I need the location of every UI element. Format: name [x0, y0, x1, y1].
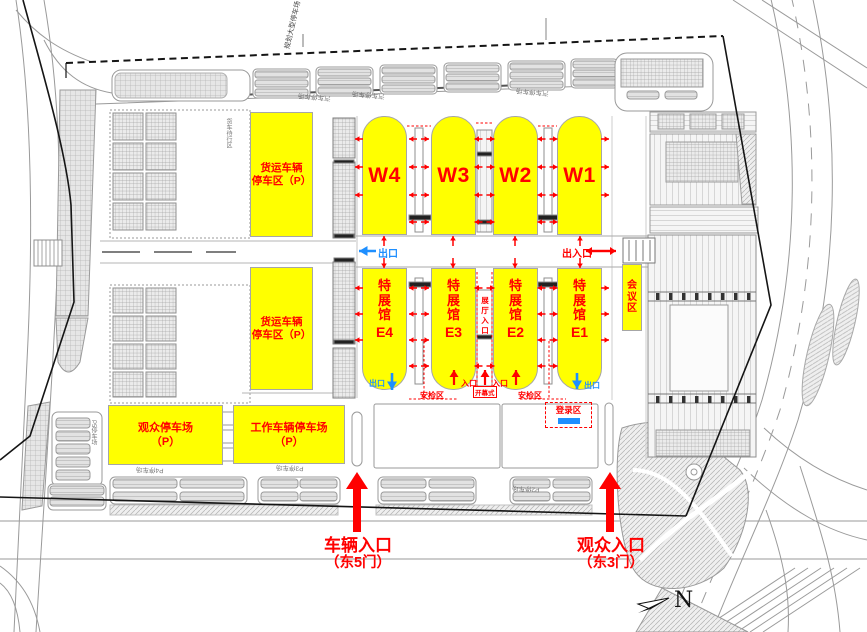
red-dashed-lines: [407, 123, 566, 399]
exhibition-site-map: 货运车辆 停车区（P） 货运车辆 停车区（P） 观众停车场 （P） 工作车辆停车…: [0, 0, 867, 632]
visitor-entrance-gate-label: 观众入口 （东3门）: [556, 536, 666, 572]
vehicle-entrance-arrow: [346, 472, 368, 532]
registration-label: 登录区: [546, 404, 591, 416]
opening-ceremony-label: 开幕式: [473, 386, 497, 398]
registration-desk-icon: [558, 418, 580, 424]
exit-label-e1: 出口: [584, 380, 600, 391]
security-check-label-right: 安检区: [518, 390, 542, 401]
gate-title: 观众入口: [556, 536, 666, 555]
truck-wait-area-label: 货车待行区: [224, 118, 233, 162]
gate-subtitle: （东3门）: [556, 555, 666, 572]
gate-title: 车辆入口: [303, 536, 413, 555]
p3-parking-label: P3停车场: [276, 463, 304, 474]
compass-arrow-icon: [638, 598, 669, 613]
exit-label-mid-left: 出口: [378, 245, 398, 260]
visitor-entrance-arrow: [599, 472, 621, 532]
exit-label-e4: 出口: [369, 378, 385, 389]
gate-subtitle: （东5门）: [303, 555, 413, 572]
vehicle-entrance-gate-label: 车辆入口 （东5门）: [303, 536, 413, 572]
registration-zone: 登录区: [545, 402, 592, 428]
p4-parking-label: P4停车场: [136, 465, 164, 476]
hall-lobby-entrance-label: 展厅入口: [480, 296, 490, 336]
flow-annotations: [0, 0, 867, 632]
security-check-label-left: 安检区: [420, 390, 444, 401]
compass-north-label: N: [674, 588, 693, 613]
p5-parking-label: P5停车场: [89, 420, 98, 472]
p2-parking-label: P2停车场: [512, 484, 540, 496]
direction-arrows: [355, 136, 616, 390]
exit-entrance-label-mid-right: 出入口: [562, 245, 592, 260]
